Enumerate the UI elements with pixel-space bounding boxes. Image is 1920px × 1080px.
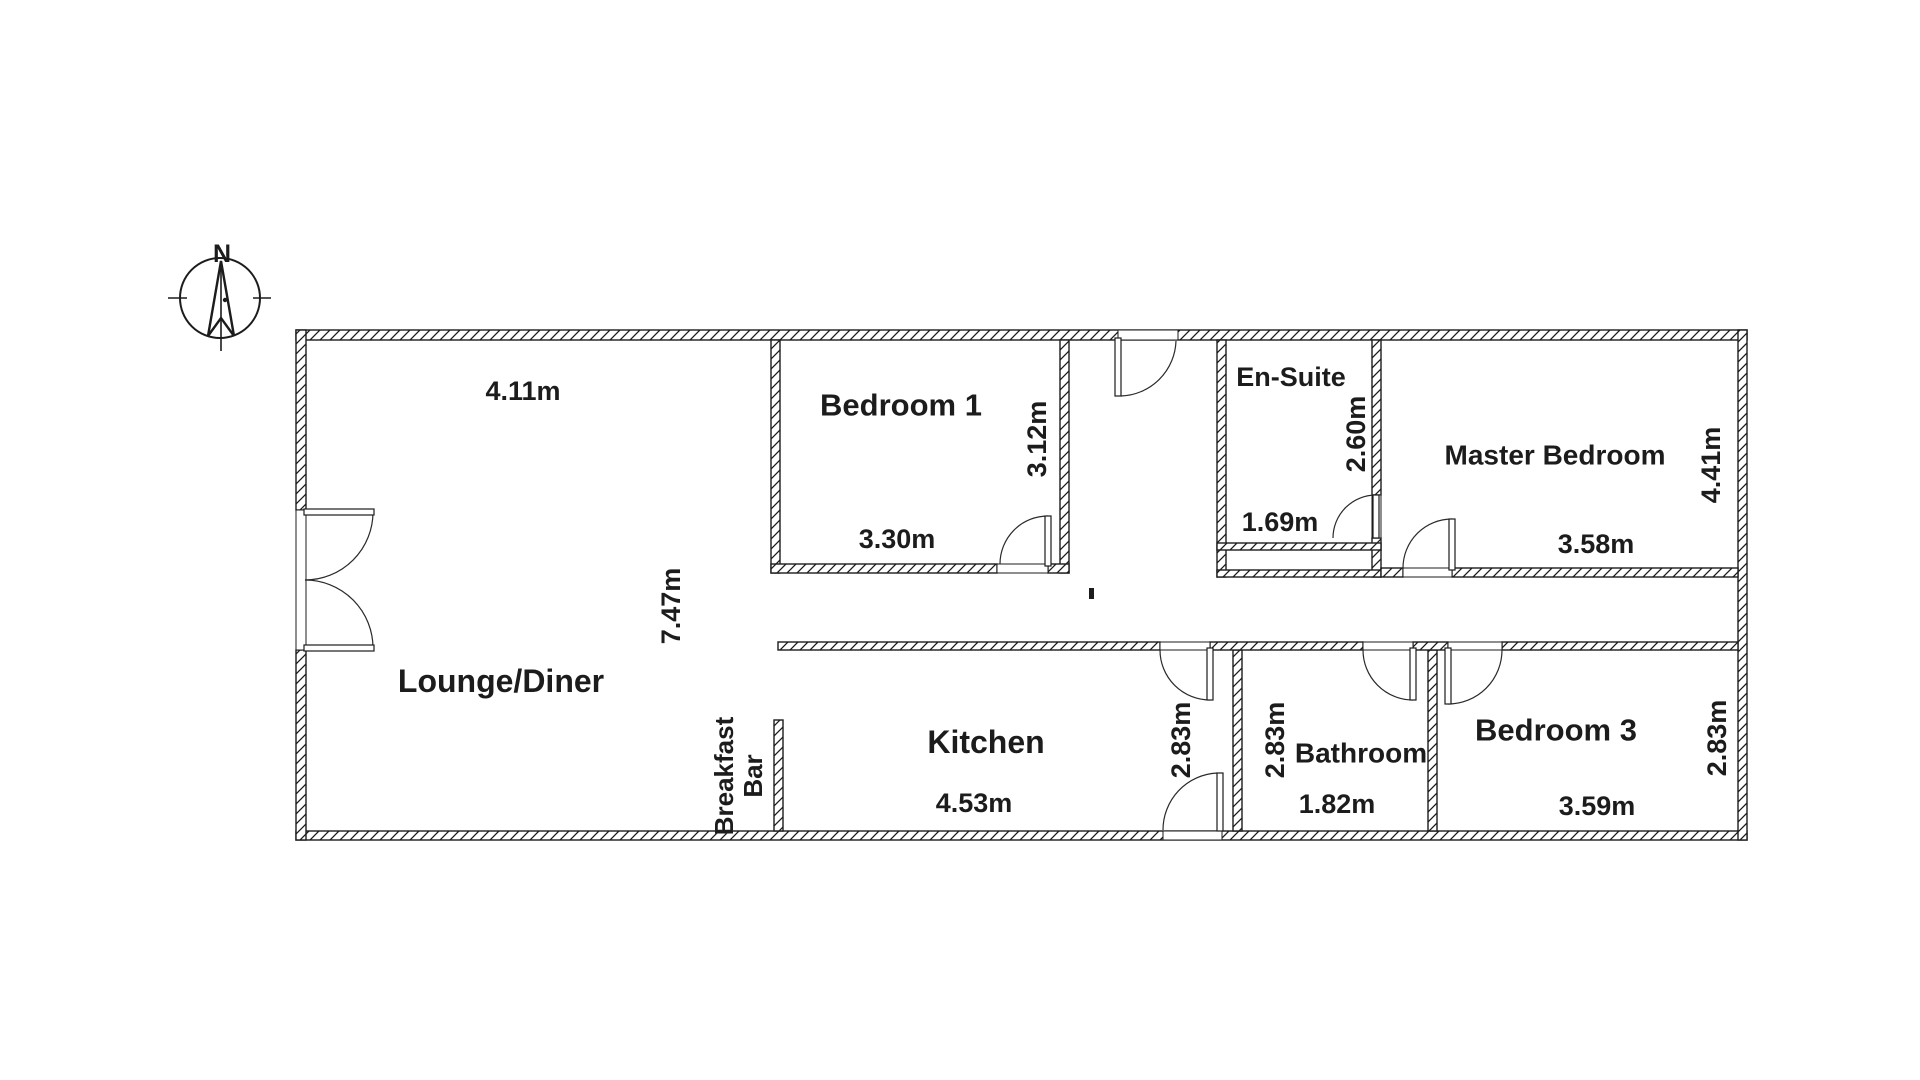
wall-master-bottom-right [1452,568,1738,577]
breakfast-bar-line2: Bar [739,717,768,836]
bathroom-door [1363,648,1416,700]
ensuite-name-label: En-Suite [1236,362,1346,392]
wall-ensuite-right-upper [1372,340,1381,495]
wall-bathroom-bedroom3 [1428,650,1437,831]
threshold-bedroom1 [997,564,1048,573]
threshold-entrance [1118,330,1178,340]
wall-bedroom1-hall [1060,340,1069,573]
kitchen-name-label: Kitchen [927,725,1044,761]
master-bedroom-width-label: 3.58m [1558,529,1635,559]
wall-corridor-d [1502,642,1738,650]
ensuite-width-label: 1.69m [1242,507,1319,537]
threshold-master [1403,568,1452,577]
breakfast-bar-line1: Breakfast [710,717,739,836]
bedroom1-depth-label: 3.12m [1022,401,1052,478]
wall-corridor-b [1210,642,1363,650]
lounge-name-label: Lounge/Diner [398,664,604,700]
wall-kitchen-bathroom [1233,650,1242,831]
bedroom3-width-label: 3.59m [1559,791,1636,821]
wall-breakfast-bar [774,720,783,831]
bedroom1-name-label: Bedroom 1 [820,389,982,424]
ensuite-depth-label: 2.60m [1341,396,1371,473]
master-bedroom-depth-label: 4.41m [1696,427,1726,504]
bedroom1-door [1000,516,1051,566]
threshold-bathroom [1363,642,1413,650]
breakfast-bar-label: Breakfast Bar [710,717,768,836]
wall-bedroom1-bottom-left [771,564,997,573]
wall-exterior-top [296,330,1747,340]
threshold-french-doors [296,510,306,650]
kitchen-depth-label: 2.83m [1166,702,1196,779]
entrance-door [1115,338,1176,396]
bathroom-width-label: 1.82m [1299,789,1376,819]
kitchen-door [1160,648,1213,700]
french-doors-lounge [304,509,374,651]
wall-master-bottom-left [1381,568,1403,577]
lounge-width-label: 4.11m [485,376,560,406]
wall-exterior-left-upper [296,330,306,510]
kitchen-back-door [1163,773,1223,831]
wall-cupboard-bottom [1217,570,1381,577]
bedroom1-width-label: 3.30m [859,524,936,554]
wall-lounge-bedroom1 [771,340,780,573]
master-bedroom-door [1403,519,1455,570]
threshold-kitchen [1160,642,1210,650]
wall-ensuite-left [1217,340,1226,577]
lounge-depth-label: 7.47m [656,568,686,645]
threshold-bedroom3 [1448,642,1502,650]
floor-plan-page: N 4.11m 7.47m Lounge/Diner Bedroom 1 3.3… [0,0,1920,1080]
wall-corridor-c [1413,642,1448,650]
threshold-back-door [1163,831,1222,840]
wall-corridor-a [778,642,1160,650]
bedroom3-name-label: Bedroom 3 [1475,714,1637,749]
bedroom3-door [1445,648,1502,704]
kitchen-width-label: 4.53m [936,788,1013,818]
bedroom3-depth-label: 2.83m [1702,700,1732,777]
bathroom-depth-label: 2.83m [1260,702,1290,779]
wall-exterior-bottom [296,831,1747,840]
master-bedroom-name-label: Master Bedroom [1445,439,1666,470]
compass-rose: N [168,240,271,351]
compass-north-label: N [213,240,231,268]
corridor-wall-stub-mark [1089,588,1094,599]
wall-exterior-left-lower [296,650,306,840]
wall-ensuite-bottom [1217,543,1381,550]
bathroom-name-label: Bathroom [1295,737,1427,768]
wall-exterior-right [1738,330,1747,840]
